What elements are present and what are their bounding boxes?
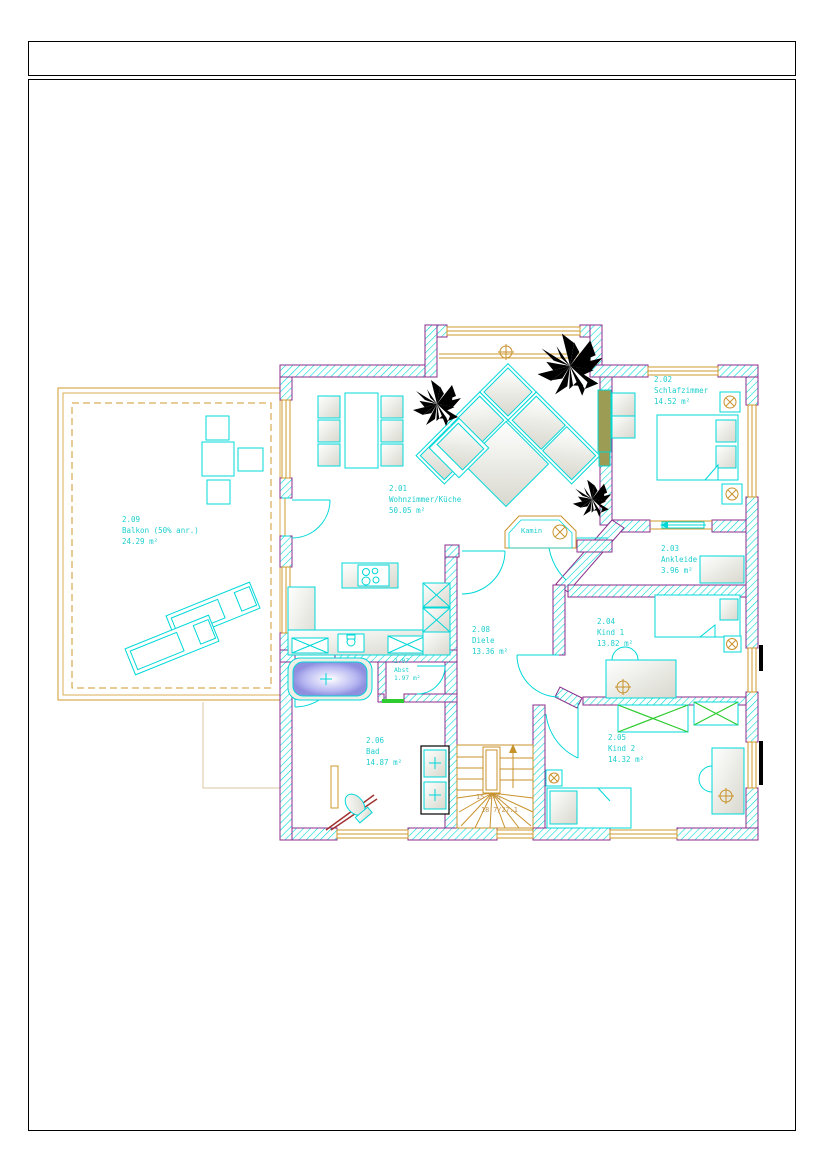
kind2-furniture: [546, 702, 744, 828]
room-label-abst: 2.07 Abst 1.97 m²: [394, 658, 421, 684]
sliding-door: [650, 521, 712, 529]
room-area: 13.82 m²: [597, 638, 633, 649]
fireplace-label: Kamin: [521, 527, 542, 535]
room-name: Ankleide: [661, 554, 697, 565]
room-name: Kind 2: [608, 743, 644, 754]
washer-dryer: [421, 746, 449, 814]
dining-set: [318, 393, 403, 468]
room-area: 1.97 m²: [394, 675, 421, 684]
room-label-kind2: 2.05 Kind 2 14.32 m²: [608, 732, 644, 765]
room-number: 2.09: [122, 514, 199, 525]
room-area: 14.52 m²: [654, 396, 708, 407]
room-name: Kind 1: [597, 627, 633, 638]
stair-rise-run: 18.7/27.1: [481, 804, 518, 817]
room-label-schlafzimmer: 2.02 Schlafzimmer 14.52 m²: [654, 374, 708, 407]
room-label-ankleide: 2.03 Ankleide 3.96 m²: [661, 543, 697, 576]
room-area: 14.32 m²: [608, 754, 644, 765]
room-number: 2.02: [654, 374, 708, 385]
room-name: Abst: [394, 667, 421, 676]
kitchen: [288, 563, 450, 655]
room-name: Diele: [472, 635, 508, 646]
terrace-edge: [203, 702, 285, 788]
section-marks: [759, 645, 763, 785]
room-number: 2.07: [394, 658, 421, 667]
room-label-bad: 2.06 Bad 14.87 m²: [366, 735, 402, 768]
stair-annotation: 15 STG 18.7/27.1: [476, 791, 518, 817]
room-name: Bad: [366, 746, 402, 757]
room-area: 24.29 m²: [122, 536, 199, 547]
room-label-diele: 2.08 Diele 13.36 m²: [472, 624, 508, 657]
room-number: 2.06: [366, 735, 402, 746]
drawing-sheet: 2.01 Wohnzimmer/Küche 50.05 m² 2.02 Schl…: [0, 0, 826, 1169]
room-label-wohnzimmer-kueche: 2.01 Wohnzimmer/Küche 50.05 m²: [389, 483, 461, 516]
room-name: Balkon (50% anr.): [122, 525, 199, 536]
bedroom-furniture: [612, 392, 742, 504]
room-label-balkon: 2.09 Balkon (50% anr.) 24.29 m²: [122, 514, 199, 547]
stair-step-count: 15 STG: [476, 791, 518, 804]
room-area: 13.36 m²: [472, 646, 508, 657]
room-name: Wohnzimmer/Küche: [389, 494, 461, 505]
room-area: 50.05 m²: [389, 505, 461, 516]
room-area: 3.96 m²: [661, 565, 697, 576]
toilet: [341, 790, 372, 822]
door-threshold: [382, 699, 404, 703]
room-number: 2.08: [472, 624, 508, 635]
room-label-kind1: 2.04 Kind 1 13.82 m²: [597, 616, 633, 649]
floor-plan: [0, 0, 826, 1169]
room-name: Schlafzimmer: [654, 385, 708, 396]
room-number: 2.01: [389, 483, 461, 494]
room-area: 14.87 m²: [366, 757, 402, 768]
ankleide-furniture: [700, 556, 744, 583]
room-number: 2.05: [608, 732, 644, 743]
room-number: 2.04: [597, 616, 633, 627]
room-number: 2.03: [661, 543, 697, 554]
